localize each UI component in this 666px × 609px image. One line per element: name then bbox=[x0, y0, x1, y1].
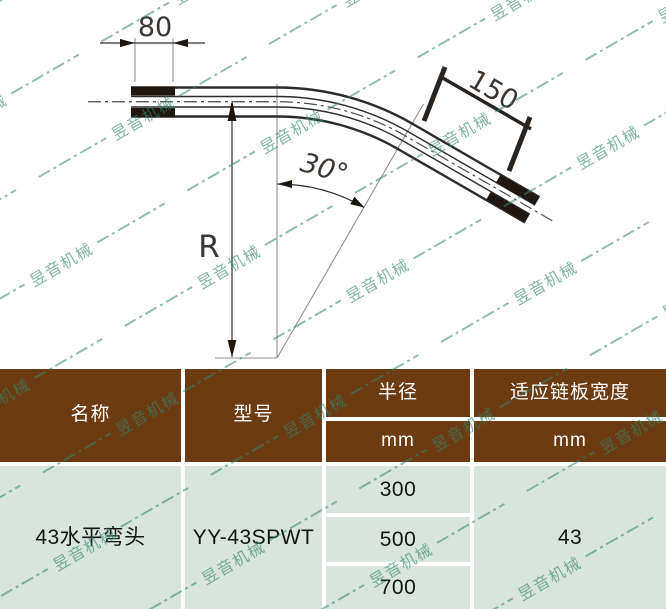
arc-arrow-right-icon bbox=[350, 197, 364, 208]
dimension-80: 80 bbox=[100, 12, 205, 47]
header-cell-plate-width-unit: mm bbox=[474, 421, 666, 462]
header-cell-radius: 半径 bbox=[326, 369, 470, 417]
dim-radius-label: R bbox=[198, 229, 220, 265]
dimension-angle: 30° bbox=[278, 147, 365, 207]
spec-table: 名称 型号 半径 适应链板宽度 mm mm 43水平弯头 YY-43SPWT 3… bbox=[0, 369, 666, 609]
cell-product-name: 43水平弯头 bbox=[0, 466, 181, 609]
cell-radius-300: 300 bbox=[326, 466, 470, 513]
r-arrow-up-icon bbox=[228, 100, 237, 121]
dimension-150: 150 bbox=[424, 64, 531, 171]
r-arrow-down-icon bbox=[228, 340, 237, 358]
dimension-radius: R bbox=[198, 100, 236, 358]
technical-drawing: 80 150 30° R bbox=[0, 0, 666, 366]
arc-arrow-left-icon bbox=[278, 180, 293, 188]
cell-radius-700: 700 bbox=[326, 566, 470, 609]
cell-model-number: YY-43SPWT bbox=[185, 466, 322, 609]
page: 80 150 30° R 名称 型号 半径 适应链板宽度 mm bbox=[0, 0, 666, 609]
dim-angle-label: 30° bbox=[297, 147, 352, 190]
header-cell-name: 名称 bbox=[0, 369, 181, 462]
cell-radius-500: 500 bbox=[326, 517, 470, 562]
cell-plate-width-43: 43 bbox=[474, 466, 666, 609]
header-cell-plate-width: 适应链板宽度 bbox=[474, 369, 666, 417]
header-cell-model: 型号 bbox=[185, 369, 322, 462]
dim-80-label: 80 bbox=[138, 12, 172, 43]
header-cell-radius-unit: mm bbox=[326, 421, 470, 462]
arrow-right-icon bbox=[173, 39, 188, 47]
arrow-left-icon bbox=[120, 39, 135, 47]
construction-lines bbox=[135, 38, 424, 358]
